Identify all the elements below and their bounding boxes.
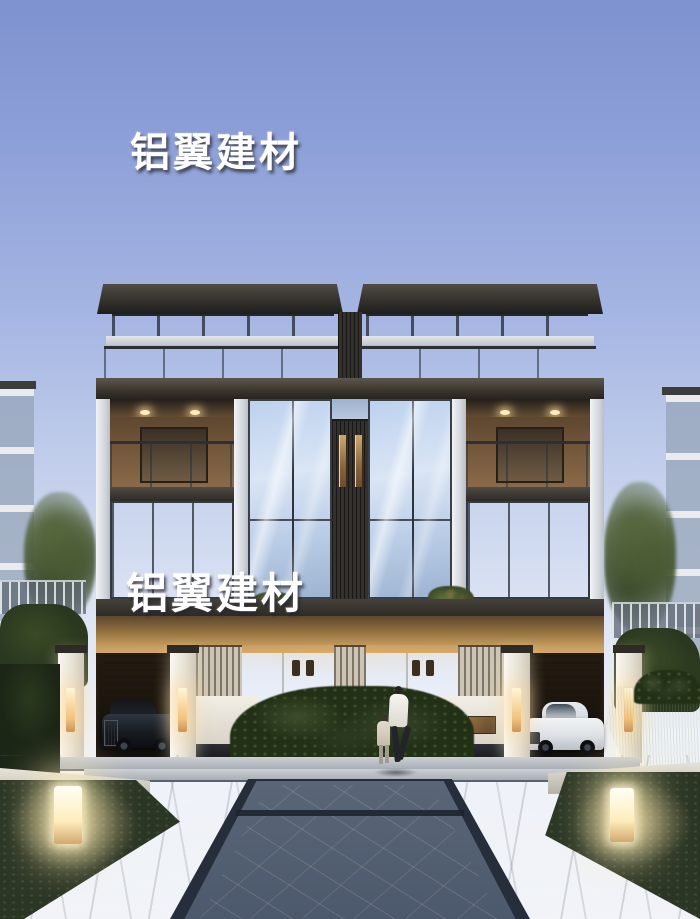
left-bollard-lamp — [54, 786, 82, 844]
right-bollard-lamp — [610, 788, 634, 842]
pier-cap — [613, 645, 645, 653]
right-glass-bay — [368, 399, 452, 599]
pier-lamp — [512, 688, 521, 732]
watermark-text-top: 铝翼建材 — [130, 120, 302, 178]
door-emblem — [306, 660, 314, 676]
left-mid-slab — [110, 487, 234, 501]
gate-pier — [504, 652, 530, 763]
child-leg — [379, 745, 383, 764]
main-fascia — [96, 378, 604, 401]
pedestrian-shadow — [374, 768, 418, 777]
mullion — [370, 519, 454, 521]
mullion — [250, 519, 334, 521]
adult-leg — [397, 726, 411, 760]
downlight — [500, 410, 510, 415]
right-roof-slab — [357, 284, 603, 314]
gate-pier — [170, 652, 196, 763]
pedestrian-group — [374, 686, 418, 778]
white-car-wheel — [538, 740, 553, 755]
right-hedge — [634, 670, 700, 704]
adult-head — [395, 686, 402, 694]
walkway-joint — [236, 810, 464, 816]
pier-cap — [501, 645, 533, 653]
right-neighbor-roof — [662, 387, 700, 395]
pier-lamp — [66, 688, 75, 732]
watermark-text-middle: 铝翼建材 — [126, 560, 306, 621]
left-roof-balustrade — [104, 346, 340, 382]
right-balcony-balustrade — [466, 441, 590, 492]
white-car — [526, 700, 604, 756]
left-roof-slab — [97, 284, 343, 314]
left-slab-band — [106, 336, 338, 345]
right-porch-ceiling — [466, 399, 590, 419]
gate-pier — [58, 652, 84, 763]
right-roof-balustrade — [360, 346, 596, 382]
child-body — [377, 721, 390, 746]
core-wood-strip — [355, 435, 363, 487]
architectural-rendering: 铝翼建材 铝翼建材 — [0, 0, 700, 919]
right-slab-band — [362, 336, 594, 345]
pier-lamp — [178, 688, 187, 732]
right-mid-slab — [466, 487, 590, 501]
door-emblem — [426, 660, 434, 676]
left-balcony-balustrade — [110, 441, 234, 492]
black-car-wheel — [154, 738, 170, 754]
downlight — [140, 410, 150, 415]
downlight — [550, 410, 560, 415]
white-car-wheel — [580, 740, 595, 755]
door-emblem — [292, 660, 300, 676]
pier-cap — [55, 645, 87, 653]
left-porch-ceiling — [110, 399, 234, 419]
mullion — [412, 401, 414, 601]
black-car — [102, 698, 178, 756]
child-head — [381, 714, 387, 721]
center-hedge — [230, 686, 474, 764]
core-glass-band — [332, 399, 368, 421]
door-emblem — [412, 660, 420, 676]
adult-shirt — [388, 694, 409, 728]
black-car-wheel — [116, 738, 132, 754]
left-neighbor-roof — [0, 381, 36, 389]
core-wood-strip — [339, 435, 347, 487]
downlight — [190, 410, 200, 415]
right-second-floor-window — [466, 501, 590, 599]
child-leg — [385, 745, 389, 763]
pier-cap — [167, 645, 199, 653]
